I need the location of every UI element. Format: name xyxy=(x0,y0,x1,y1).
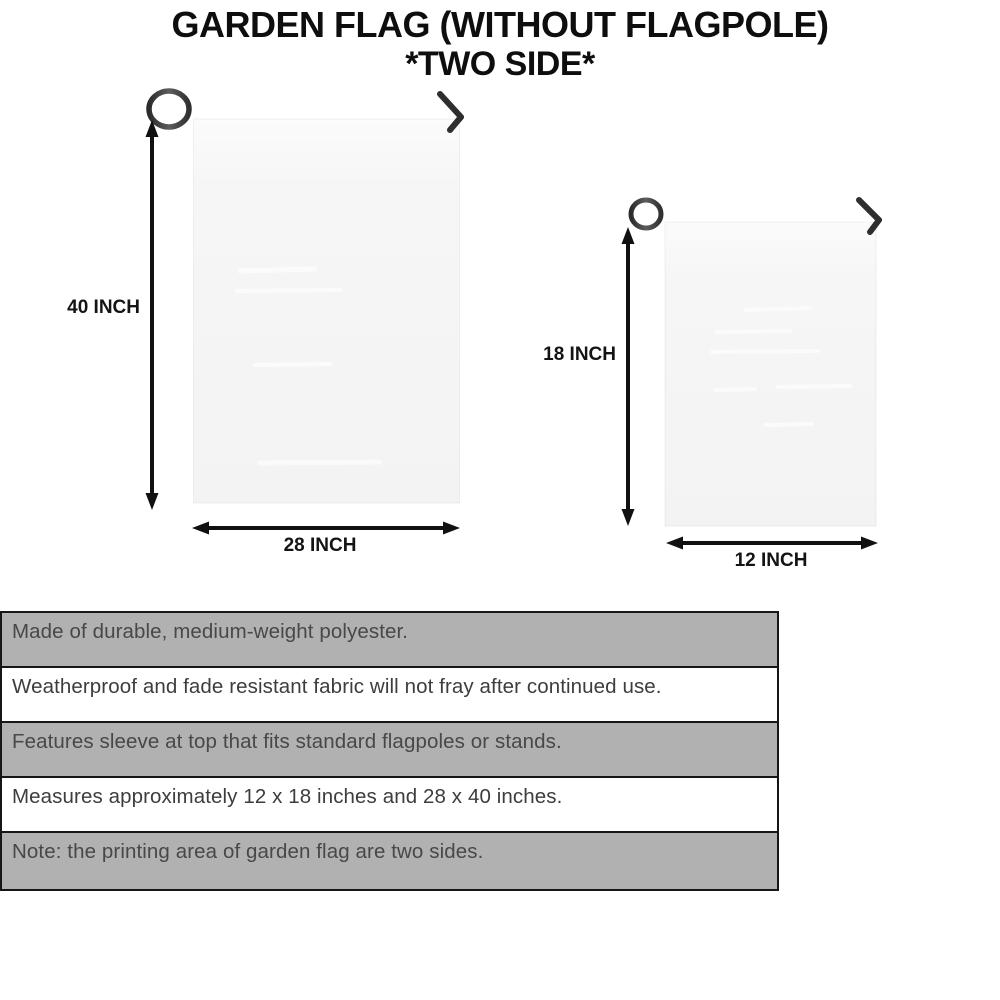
small-flag-height-label: 18 INCH xyxy=(496,344,616,366)
large-flag-height-arrow xyxy=(146,120,159,510)
large-flagpole-loop xyxy=(149,91,189,127)
small-flag-height-arrow xyxy=(622,227,635,526)
large-flag-group xyxy=(146,91,462,609)
features-table: Made of durable, medium-weight polyester… xyxy=(0,611,779,891)
small-flag-fabric xyxy=(665,222,876,526)
feature-row: Features sleeve at top that fits standar… xyxy=(2,723,777,778)
small-flagpole-loop xyxy=(631,200,661,228)
large-flag-height-label: 40 INCH xyxy=(40,297,140,319)
feature-row: Measures approximately 12 x 18 inches an… xyxy=(2,778,777,833)
large-flag-fabric xyxy=(194,119,460,503)
small-flag-width-label: 12 INCH xyxy=(691,550,851,572)
large-flag-width-arrow xyxy=(192,522,460,535)
large-flag-width-label: 28 INCH xyxy=(230,535,410,557)
garden-flag-size-infographic: GARDEN FLAG (WITHOUT FLAGPOLE) *TWO SIDE… xyxy=(0,0,1000,1000)
feature-row: Made of durable, medium-weight polyester… xyxy=(2,613,777,668)
small-flag-width-arrow xyxy=(666,537,878,550)
small-flag-group xyxy=(622,200,880,609)
feature-row: Note: the printing area of garden flag a… xyxy=(2,833,777,889)
feature-row: Weatherproof and fade resistant fabric w… xyxy=(2,668,777,723)
